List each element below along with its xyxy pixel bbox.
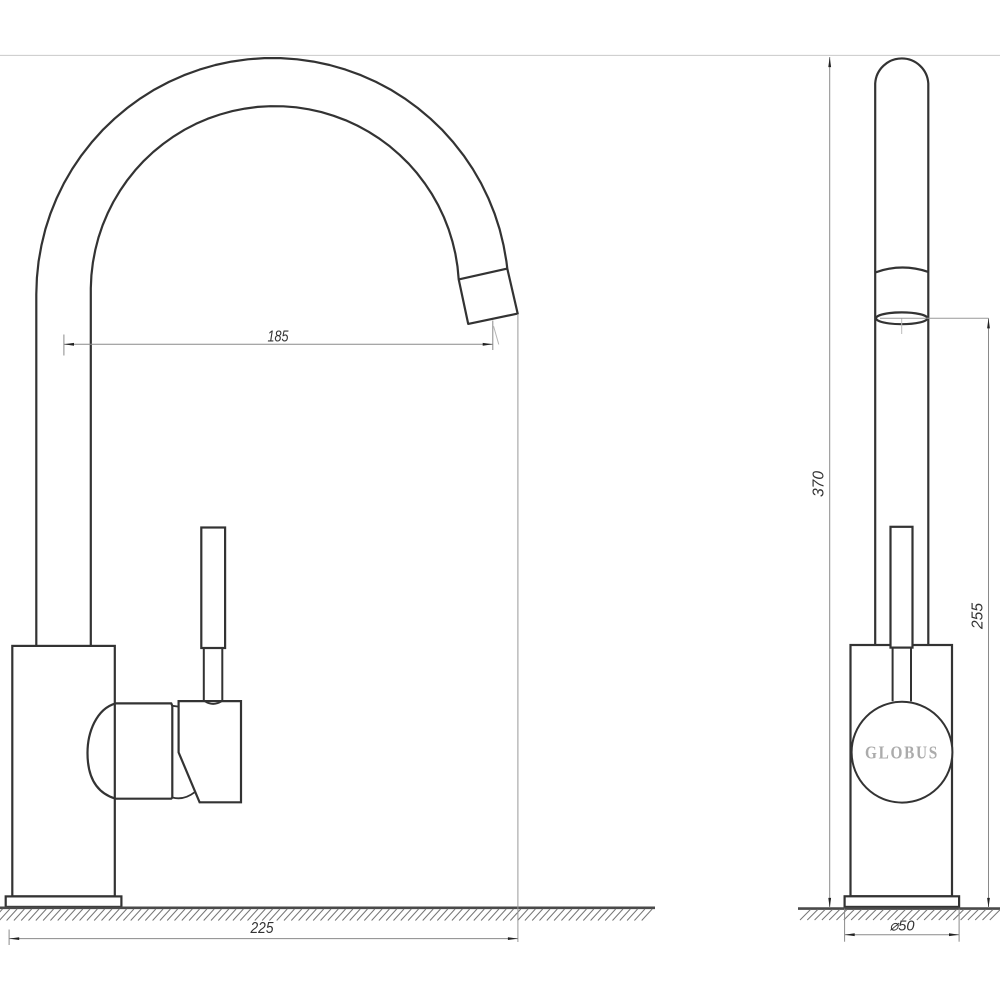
svg-text:225: 225 [250,920,274,937]
svg-text:185: 185 [268,329,289,346]
svg-text:GLOBUS: GLOBUS [865,743,939,763]
svg-text:370: 370 [811,471,828,497]
svg-text:⌀50: ⌀50 [890,918,916,935]
svg-text:255: 255 [970,603,987,630]
